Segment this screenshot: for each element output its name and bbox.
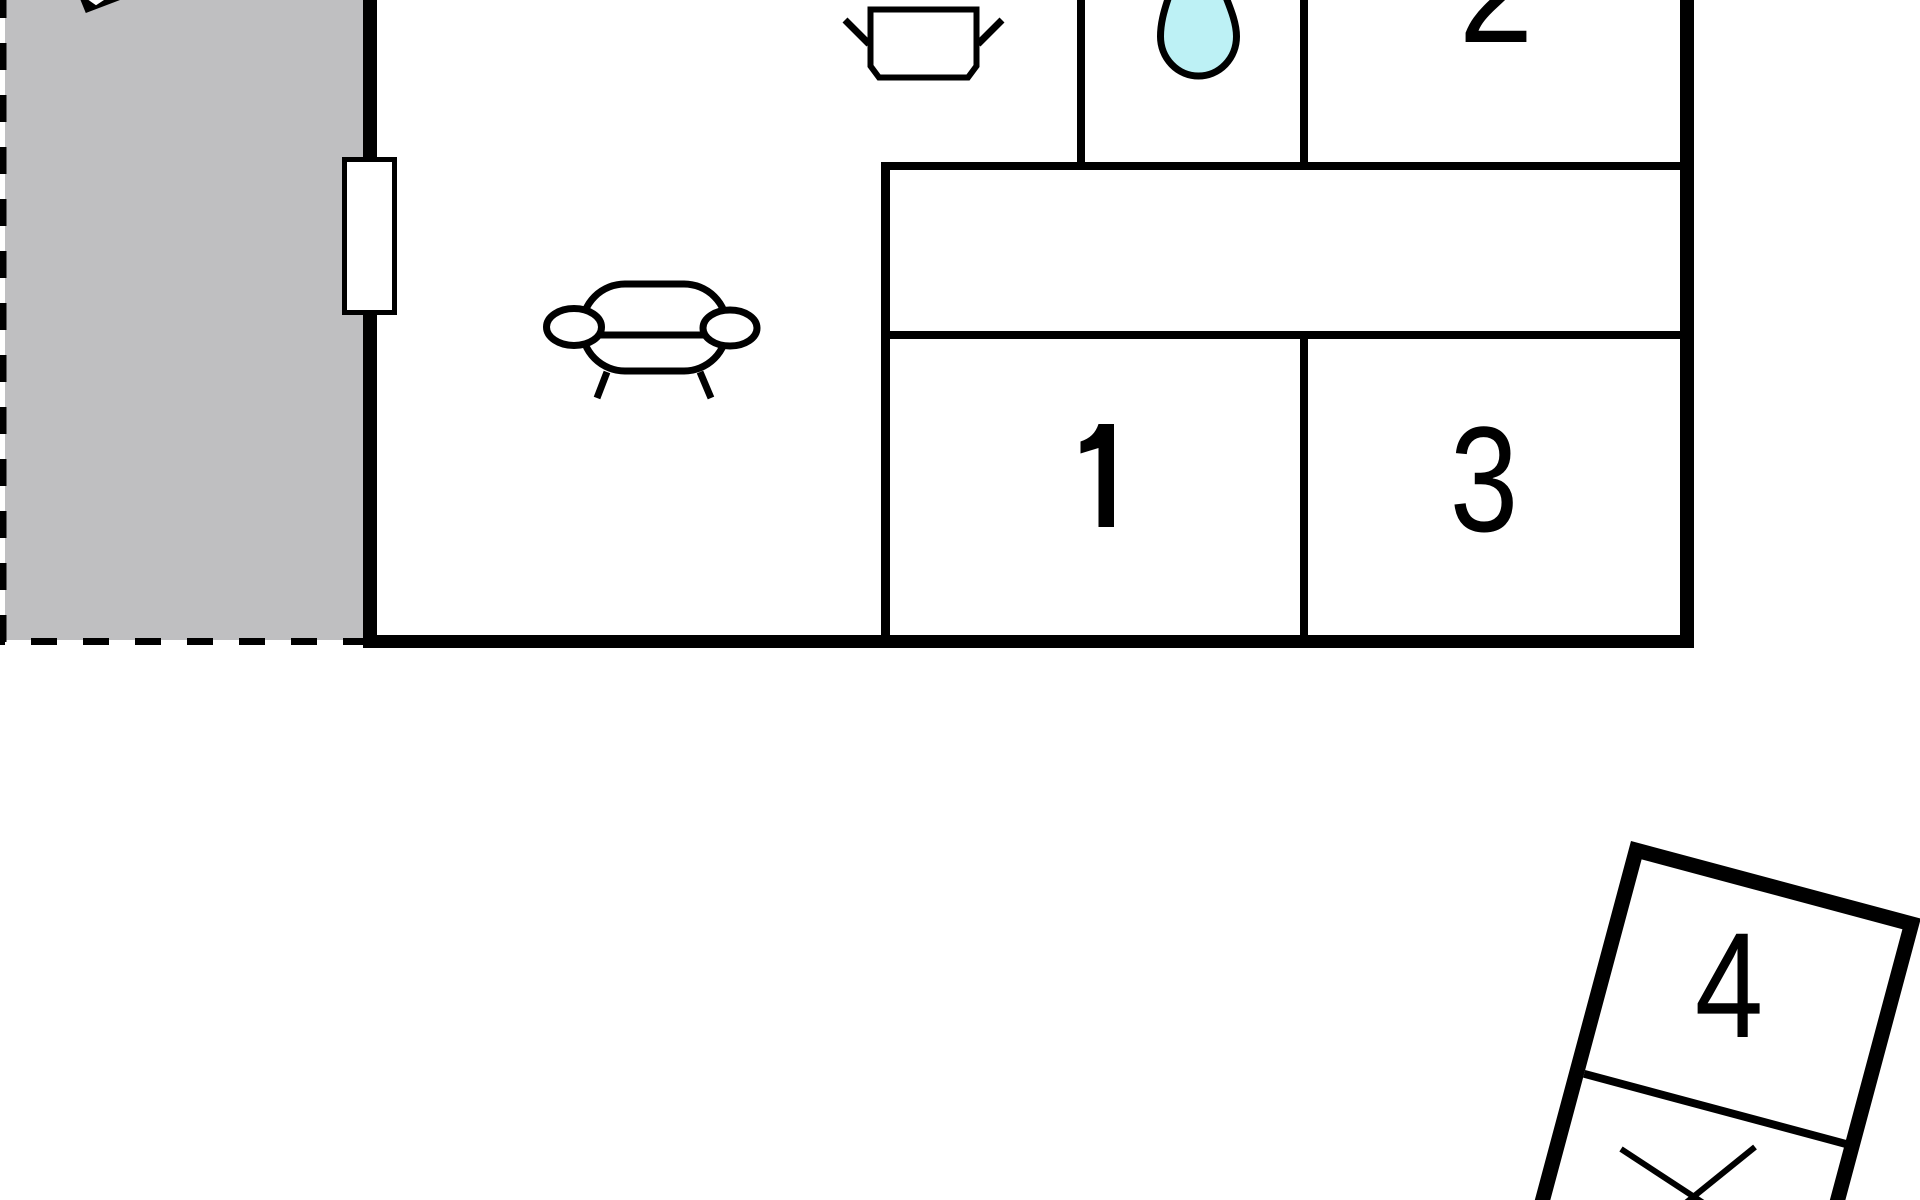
svg-text:4: 4: [1695, 902, 1763, 1069]
svg-text:2: 2: [1459, 0, 1533, 75]
svg-text:3: 3: [1450, 396, 1518, 563]
